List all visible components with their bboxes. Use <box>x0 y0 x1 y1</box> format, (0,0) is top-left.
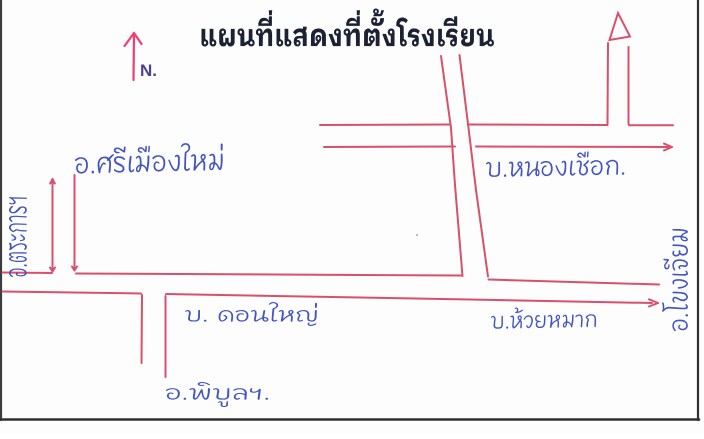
svg-text:N.: N. <box>140 61 157 80</box>
